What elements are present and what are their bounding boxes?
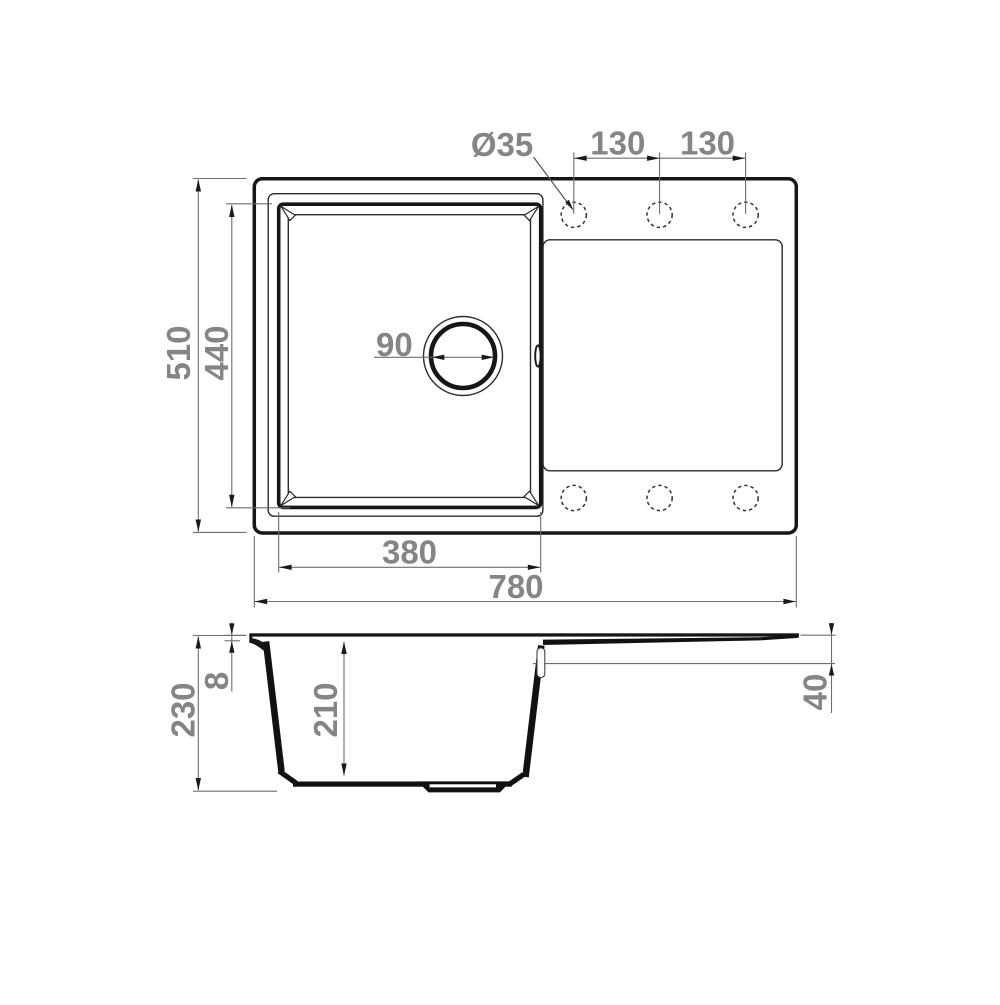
svg-text:210: 210 (307, 682, 344, 737)
svg-text:780: 780 (488, 568, 543, 605)
svg-text:90: 90 (376, 326, 413, 363)
svg-text:8: 8 (198, 672, 235, 690)
svg-text:40: 40 (797, 674, 834, 711)
svg-text:380: 380 (382, 534, 437, 571)
svg-text:130: 130 (680, 124, 735, 161)
svg-text:510: 510 (160, 325, 197, 380)
svg-text:Ø35: Ø35 (471, 126, 533, 163)
svg-text:230: 230 (165, 682, 202, 737)
svg-text:130: 130 (590, 124, 645, 161)
svg-text:440: 440 (198, 325, 235, 380)
